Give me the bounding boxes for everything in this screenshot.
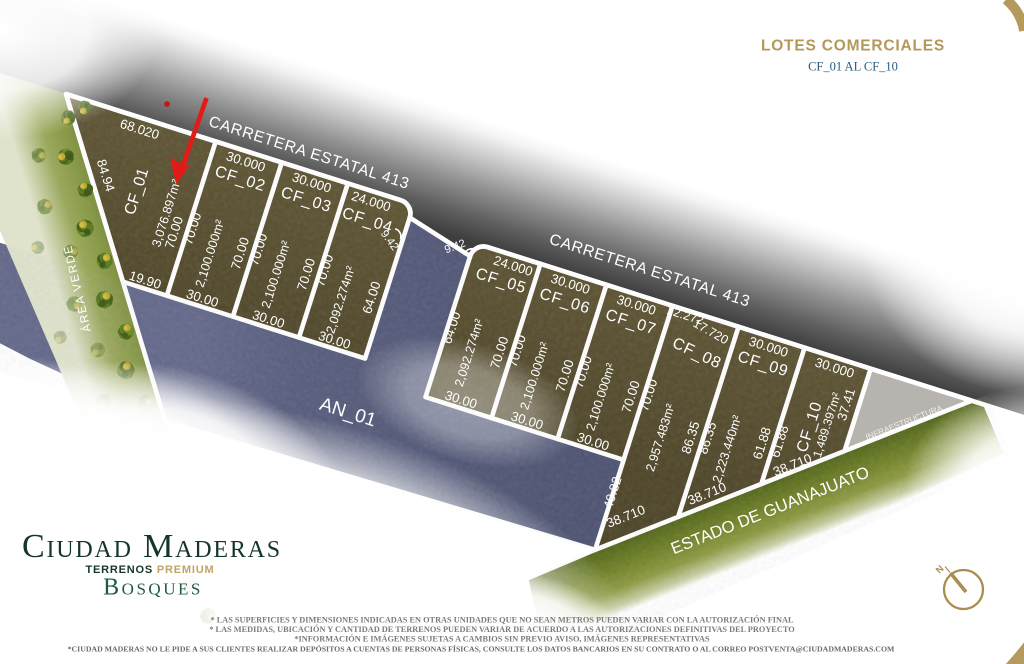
svg-text:Ciudad Maderas: Ciudad Maderas [22,528,282,565]
svg-text:CF_01 AL CF_10: CF_01 AL CF_10 [808,60,898,74]
svg-text:*CIUDAD MADERAS NO LE PIDE A S: *CIUDAD MADERAS NO LE PIDE A SUS CLIENTE… [68,644,895,654]
svg-text:* LAS MEDIDAS, UBICACIÓN Y CAN: * LAS MEDIDAS, UBICACIÓN Y CANTIDAD DE T… [209,624,795,634]
svg-text:*INFORMACIÓN E IMÁGENES SUJETA: *INFORMACIÓN E IMÁGENES SUJETAS A CAMBIO… [294,634,710,644]
svg-text:* LAS SUPERFICIES Y DIMENSIONE: * LAS SUPERFICIES Y DIMENSIONES INDICADA… [210,615,794,625]
svg-text:LOTES COMERCIALES: LOTES COMERCIALES [761,38,945,55]
svg-text:Bosques: Bosques [103,575,203,601]
